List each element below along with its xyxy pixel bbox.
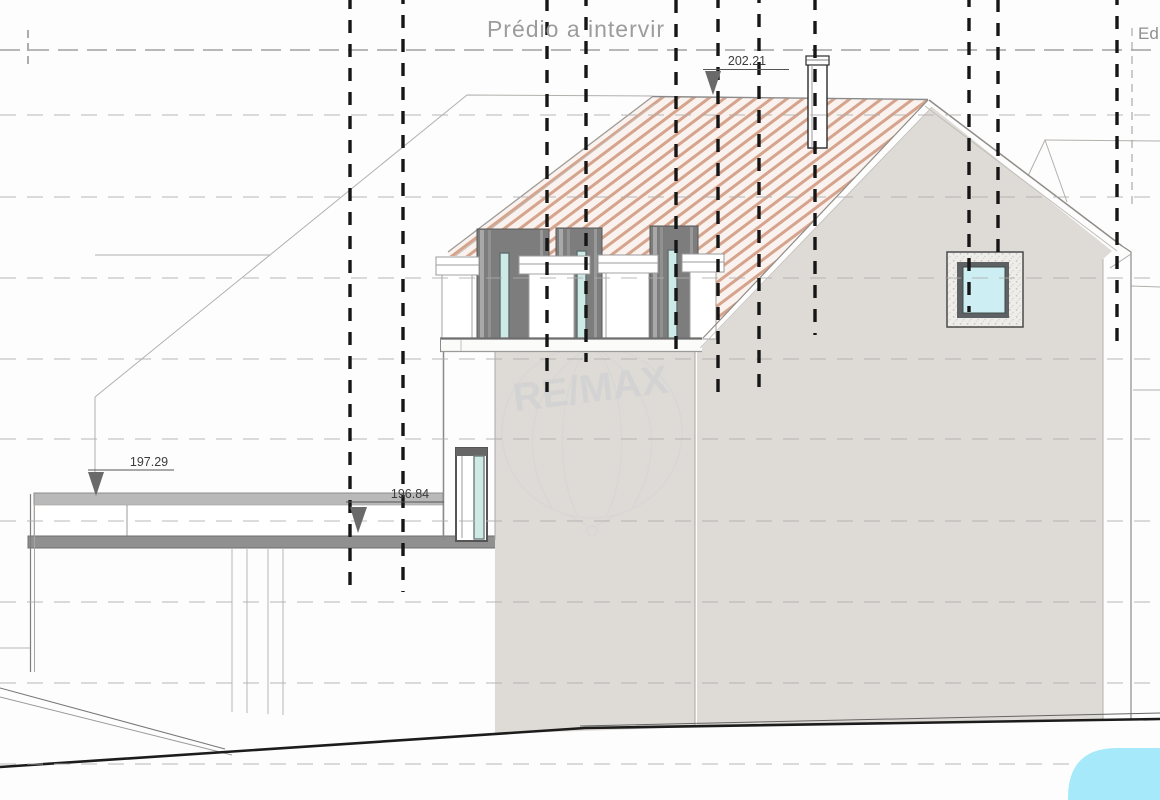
chimney bbox=[806, 56, 829, 148]
balcony-slab bbox=[440, 338, 702, 352]
adjacent-building-label: Ed bbox=[1138, 24, 1159, 43]
slab-level-value: 196.84 bbox=[391, 487, 429, 501]
elevation-drawing: RE/MAX bbox=[0, 0, 1160, 800]
dormer-windows bbox=[436, 226, 724, 345]
terrace-parapet-cap bbox=[34, 493, 443, 505]
entry-door bbox=[456, 448, 487, 541]
terrace-slab-196 bbox=[28, 536, 498, 548]
door-head bbox=[456, 448, 487, 456]
gable-window bbox=[947, 252, 1023, 327]
chimney-cap bbox=[806, 56, 829, 65]
drawing-title: Prédio a intervir bbox=[487, 16, 665, 42]
terrace-level-value: 197.29 bbox=[130, 455, 168, 469]
elevation-drawing-page: RE/MAX bbox=[0, 0, 1160, 800]
chimney-body bbox=[808, 62, 827, 148]
ridge-level-value: 202.21 bbox=[728, 54, 766, 68]
door-glass bbox=[474, 456, 484, 539]
